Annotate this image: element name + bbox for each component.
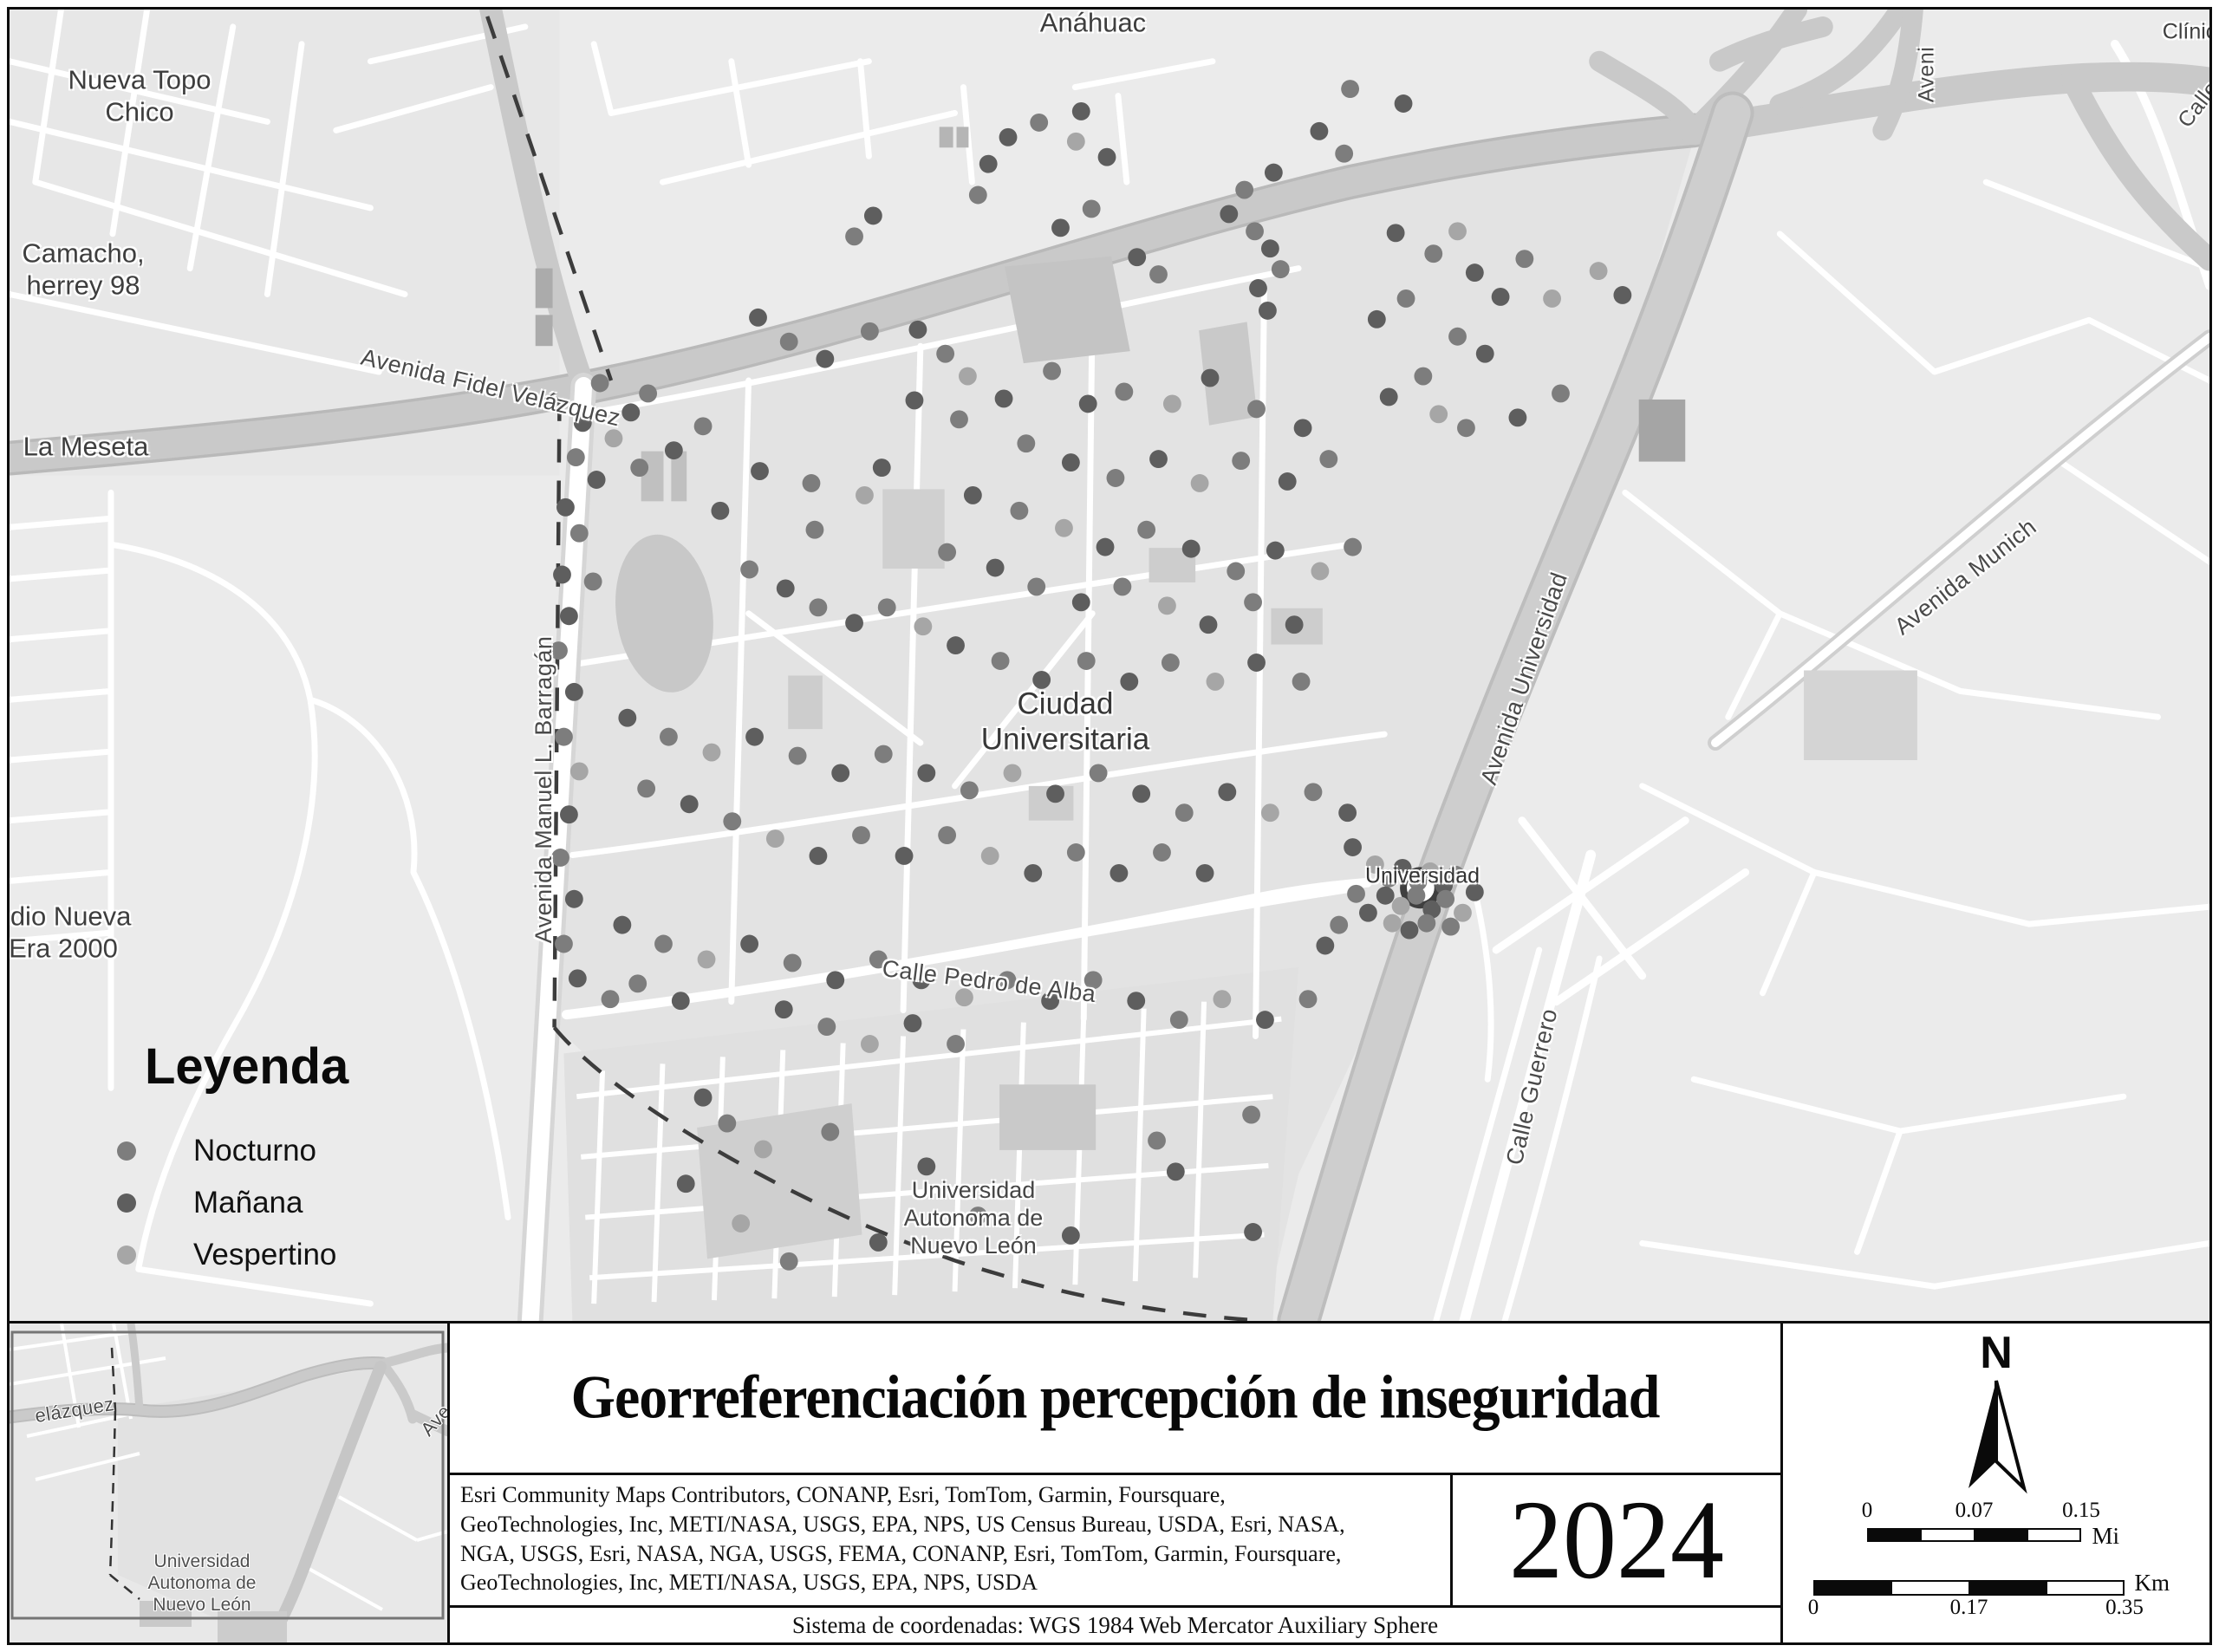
survey-dot (1148, 1132, 1166, 1150)
label-inset-uanl: Universidad Autonoma de Nuevo León (148, 1551, 257, 1616)
survey-dot (591, 374, 609, 393)
survey-dot (1196, 864, 1214, 882)
survey-dot (1246, 222, 1264, 240)
survey-dot (938, 543, 956, 562)
survey-dot (950, 410, 968, 428)
survey-dot (938, 826, 956, 844)
survey-dot (780, 1252, 798, 1271)
survey-dot (1261, 803, 1279, 822)
survey-dot (637, 779, 655, 797)
coordinate-system: Sistema de coordenadas: WGS 1984 Web Mer… (450, 1605, 1780, 1642)
survey-dot (1448, 328, 1467, 346)
label-uanl: Universidad Autonoma de Nuevo León (904, 1177, 1044, 1260)
survey-dot (1218, 783, 1236, 801)
survey-dot (1509, 408, 1527, 426)
survey-dot (1132, 784, 1150, 803)
survey-dot (1024, 864, 1042, 882)
survey-dot (1492, 288, 1510, 306)
survey-dot (1107, 469, 1125, 487)
survey-dot (1395, 94, 1413, 113)
survey-dot (992, 652, 1010, 670)
survey-dot (1027, 577, 1045, 595)
survey-dot (1417, 914, 1435, 933)
survey-dot (803, 474, 821, 492)
attribution-text: Esri Community Maps Contributors, CONANP… (450, 1475, 1450, 1605)
label-nueva-topo-chico: Nueva Topo Chico (68, 64, 211, 127)
survey-dot (995, 389, 1013, 407)
survey-dot (1017, 434, 1035, 452)
survey-dot (672, 992, 690, 1010)
survey-dot (875, 745, 893, 764)
legend-swatch-icon (117, 1141, 136, 1161)
survey-dot (810, 598, 828, 616)
survey-dot (873, 459, 891, 477)
survey-dot (1232, 452, 1250, 470)
legend-items: NocturnoMañanaVespertino (93, 1135, 379, 1271)
survey-dot (560, 805, 578, 823)
survey-dot (917, 1157, 935, 1175)
survey-dot (775, 1000, 793, 1018)
survey-dot (1244, 1223, 1262, 1241)
survey-dot (1010, 502, 1028, 520)
map-layout-page: Anáhuac Nueva Topo Chico Camacho, herrey… (0, 0, 2219, 1652)
survey-dot (1115, 383, 1133, 401)
label-nueva-era: edio Nueva Era 2000 (10, 901, 131, 964)
survey-dot (1266, 542, 1285, 560)
survey-dot (1046, 784, 1064, 803)
survey-dot (1299, 990, 1318, 1008)
survey-dot (1055, 519, 1073, 537)
survey-dot (789, 747, 807, 765)
survey-dot (936, 345, 954, 363)
survey-dot (565, 890, 583, 908)
mi-tick-max: 0.15 (2062, 1499, 2100, 1523)
title-row: Georreferenciación percepción de insegur… (450, 1324, 1780, 1473)
survey-dot (1279, 472, 1297, 491)
km-tick-0: 0 (1808, 1596, 1819, 1620)
survey-dot (1414, 367, 1432, 386)
label-clinica: Clínica (2163, 19, 2209, 45)
survey-dot (1113, 577, 1131, 595)
survey-dot (1201, 369, 1220, 387)
survey-dot (602, 990, 620, 1008)
bottom-panel: elázquez Ave Universidad Autonoma de Nue… (10, 1321, 2209, 1642)
survey-dot (732, 1214, 750, 1232)
survey-dot (869, 1233, 888, 1252)
survey-dot (1285, 615, 1304, 634)
legend-swatch-icon (117, 1193, 136, 1213)
legend-title: Leyenda (145, 1037, 379, 1096)
survey-dot (947, 636, 965, 654)
survey-dot (1294, 419, 1312, 437)
survey-dot (909, 321, 927, 339)
survey-dot (1347, 885, 1365, 903)
survey-dot (1590, 262, 1608, 280)
survey-dot (1387, 224, 1405, 242)
survey-dot (745, 728, 764, 746)
survey-dot (1330, 916, 1348, 934)
km-tick-max: 0.35 (2105, 1596, 2144, 1620)
survey-dot (1457, 419, 1475, 437)
survey-dot (964, 486, 982, 504)
survey-dot (1083, 199, 1101, 218)
survey-dot (1261, 239, 1279, 257)
survey-dot (981, 847, 999, 865)
survey-dot (861, 322, 879, 341)
survey-dot (1167, 1162, 1185, 1180)
survey-dot (979, 155, 998, 173)
survey-dot (1235, 181, 1253, 199)
survey-dot (1004, 764, 1022, 782)
legend: Leyenda NocturnoMañanaVespertino (93, 1037, 379, 1291)
survey-dot (1051, 218, 1070, 237)
survey-dot (565, 683, 583, 701)
survey-dot (621, 403, 640, 421)
survey-dot (1072, 102, 1090, 120)
survey-dot (1062, 1226, 1080, 1245)
legend-item-label: Vespertino (193, 1238, 336, 1272)
survey-dot (1227, 563, 1245, 581)
legend-item-nocturno: Nocturno (93, 1135, 379, 1167)
survey-dot (694, 1089, 713, 1107)
label-la-meseta: La Meseta (23, 432, 149, 464)
survey-dot (816, 350, 834, 368)
label-aveni: Aveni (1914, 47, 1940, 103)
survey-dot (1265, 164, 1283, 182)
survey-dot (1338, 803, 1357, 822)
survey-dot (1454, 904, 1472, 922)
year-label: 2024 (1509, 1475, 1724, 1604)
scalebar-km: 0 0.17 0.35 Km (1813, 1580, 2125, 1596)
survey-dot (553, 566, 571, 584)
year-cell: 2024 (1450, 1475, 1780, 1605)
survey-dot (1242, 1106, 1260, 1124)
survey-dot (1272, 260, 1290, 278)
survey-dot (1077, 652, 1096, 670)
survey-dot (1543, 289, 1561, 308)
survey-dot (826, 971, 844, 989)
survey-dot (1067, 843, 1085, 862)
survey-dot (694, 417, 713, 435)
survey-dot (1380, 387, 1398, 406)
survey-dot (569, 969, 587, 987)
survey-dot (749, 309, 767, 327)
survey-dot (703, 744, 721, 762)
legend-item-label: Mañana (193, 1186, 303, 1220)
survey-dot (1163, 394, 1181, 413)
survey-dot (740, 935, 758, 953)
survey-dot (1200, 615, 1218, 634)
survey-dot (1441, 918, 1460, 936)
survey-dot (831, 764, 849, 782)
survey-dot (1162, 654, 1180, 672)
survey-dot (1319, 450, 1337, 468)
survey-dot (718, 1115, 736, 1133)
legend-swatch-icon (117, 1246, 136, 1265)
survey-dot (1344, 838, 1362, 856)
survey-dot (1359, 904, 1377, 922)
survey-dot (1182, 540, 1201, 558)
survey-dot (1158, 596, 1176, 615)
survey-dot (1383, 914, 1402, 933)
survey-dot (698, 950, 716, 968)
survey-dot (1376, 887, 1395, 905)
survey-dot (570, 524, 589, 543)
survey-dot (556, 498, 575, 517)
survey-dot (584, 572, 602, 590)
survey-dot (1335, 145, 1353, 163)
survey-dot (1030, 114, 1048, 132)
survey-dot (806, 521, 824, 539)
map-title: Georreferenciación percepción de insegur… (571, 1363, 1660, 1434)
survey-dot (1220, 205, 1238, 223)
survey-dot (1109, 864, 1128, 882)
inset-map: elázquez Ave Universidad Autonoma de Nue… (10, 1324, 450, 1642)
survey-dot (1127, 992, 1145, 1010)
survey-dot (560, 607, 578, 625)
survey-dot (1466, 263, 1484, 282)
survey-dot (856, 486, 874, 504)
survey-dot (1067, 133, 1085, 151)
km-unit: Km (2135, 1570, 2170, 1597)
survey-dot (1316, 937, 1334, 955)
north-label: N (1783, 1330, 2209, 1376)
legend-item-mañana: Mañana (93, 1187, 379, 1219)
survey-dot (1207, 673, 1225, 691)
survey-dot (766, 829, 784, 848)
survey-dot (639, 384, 657, 402)
survey-dot (864, 206, 882, 224)
survey-dot (1341, 80, 1359, 98)
survey-dot (1259, 302, 1277, 320)
survey-dot (1476, 345, 1494, 363)
mi-bar (1867, 1528, 2081, 1542)
survey-dot (567, 448, 585, 466)
survey-dot (1137, 521, 1155, 539)
survey-dot (1072, 593, 1090, 611)
survey-dot (1247, 654, 1266, 672)
label-ciudad-universitaria: Ciudad Universitaria (981, 686, 1150, 758)
survey-dot (895, 847, 914, 865)
survey-dot (740, 561, 758, 579)
survey-dot (904, 1014, 922, 1032)
survey-dot (1249, 279, 1267, 297)
credits-row: Esri Community Maps Contributors, CONANP… (450, 1473, 1780, 1605)
mi-tick-mid: 0.07 (1955, 1499, 1994, 1523)
survey-dot (1098, 148, 1116, 166)
survey-dot (1311, 563, 1329, 581)
survey-dot (613, 916, 631, 934)
survey-dot (1305, 783, 1323, 801)
survey-dot (1079, 394, 1097, 413)
survey-dot (1090, 764, 1108, 782)
survey-dot (986, 559, 1005, 577)
survey-dot (821, 1123, 839, 1141)
survey-dot (1429, 405, 1448, 423)
survey-dot (630, 459, 648, 477)
survey-dot (861, 1035, 879, 1053)
survey-dot (817, 1018, 836, 1036)
legend-item-label: Nocturno (193, 1134, 316, 1168)
survey-dot (1310, 122, 1328, 140)
survey-dot (660, 728, 678, 746)
survey-dot (680, 795, 699, 813)
survey-dot (947, 1035, 965, 1053)
survey-dot (1392, 897, 1410, 915)
legend-item-vespertino: Vespertino (93, 1239, 379, 1271)
survey-dot (959, 367, 977, 386)
survey-dot (1256, 1011, 1274, 1029)
survey-dot (999, 128, 1018, 146)
survey-dot (780, 333, 798, 351)
layout-frame: Anáhuac Nueva Topo Chico Camacho, herrey… (7, 7, 2212, 1645)
label-avenida-manuel-barragan: Avenida Manuel L. Barragán (530, 636, 558, 944)
survey-dot (914, 617, 932, 635)
map-area: Anáhuac Nueva Topo Chico Camacho, herrey… (10, 10, 2209, 1321)
survey-dot (1213, 990, 1231, 1008)
survey-dot (1149, 265, 1168, 283)
survey-dot (1175, 803, 1194, 822)
km-bar (1813, 1580, 2125, 1596)
survey-dot (1096, 538, 1115, 556)
survey-dot (677, 1174, 695, 1193)
survey-dot (665, 441, 683, 459)
title-block: Georreferenciación percepción de insegur… (450, 1324, 1780, 1642)
survey-dot (810, 847, 828, 865)
survey-dot (1368, 310, 1386, 328)
survey-dot (960, 781, 979, 799)
survey-dot (1128, 248, 1146, 266)
survey-dot (1552, 384, 1570, 402)
survey-dot (1043, 362, 1061, 380)
label-anahuac: Anáhuac (1040, 10, 1146, 39)
survey-dot (777, 579, 795, 597)
north-scale-box: N 0 0.07 0.15 Mi (1780, 1324, 2209, 1642)
mi-tick-0: 0 (1862, 1499, 1873, 1523)
north-arrow: N (1783, 1330, 2209, 1499)
survey-dot (784, 953, 802, 972)
mi-unit: Mi (2092, 1523, 2119, 1550)
survey-dot (845, 227, 863, 245)
survey-dot (878, 598, 896, 616)
survey-dot (1397, 289, 1415, 308)
survey-dot (570, 762, 589, 780)
survey-dot (1191, 474, 1209, 492)
survey-dot (1153, 843, 1171, 862)
survey-dot (917, 764, 935, 782)
north-arrow-icon (1960, 1377, 2033, 1495)
survey-dot (1613, 286, 1631, 304)
survey-dot (1244, 593, 1262, 611)
survey-dot (1436, 890, 1454, 908)
scalebar-miles: 0 0.07 0.15 Mi (1867, 1528, 2081, 1542)
survey-dot (845, 614, 863, 632)
survey-dot (1292, 673, 1311, 691)
survey-dot (1062, 453, 1080, 472)
survey-dot (1448, 222, 1467, 240)
survey-dot (1149, 450, 1168, 468)
survey-dot (906, 391, 924, 409)
km-tick-mid: 0.17 (1950, 1596, 1988, 1620)
survey-dot (711, 502, 729, 520)
label-universidad-station: Universidad (1365, 863, 1480, 889)
survey-dot (1515, 250, 1533, 268)
survey-dot (751, 462, 769, 480)
survey-dot (588, 471, 606, 489)
survey-dot (1247, 400, 1266, 418)
survey-dot (852, 826, 870, 844)
survey-dot (618, 709, 636, 727)
survey-dot (1170, 1011, 1188, 1029)
survey-dot (1344, 538, 1362, 556)
survey-dot (1408, 887, 1426, 905)
survey-dot (628, 974, 647, 992)
survey-dot (1424, 244, 1442, 263)
survey-dot (723, 812, 741, 830)
survey-dot (969, 186, 987, 205)
survey-dot (1401, 921, 1419, 940)
survey-dot (654, 935, 673, 953)
label-camacho: Camacho, herrey 98 (22, 237, 144, 301)
survey-dot (754, 1140, 772, 1158)
